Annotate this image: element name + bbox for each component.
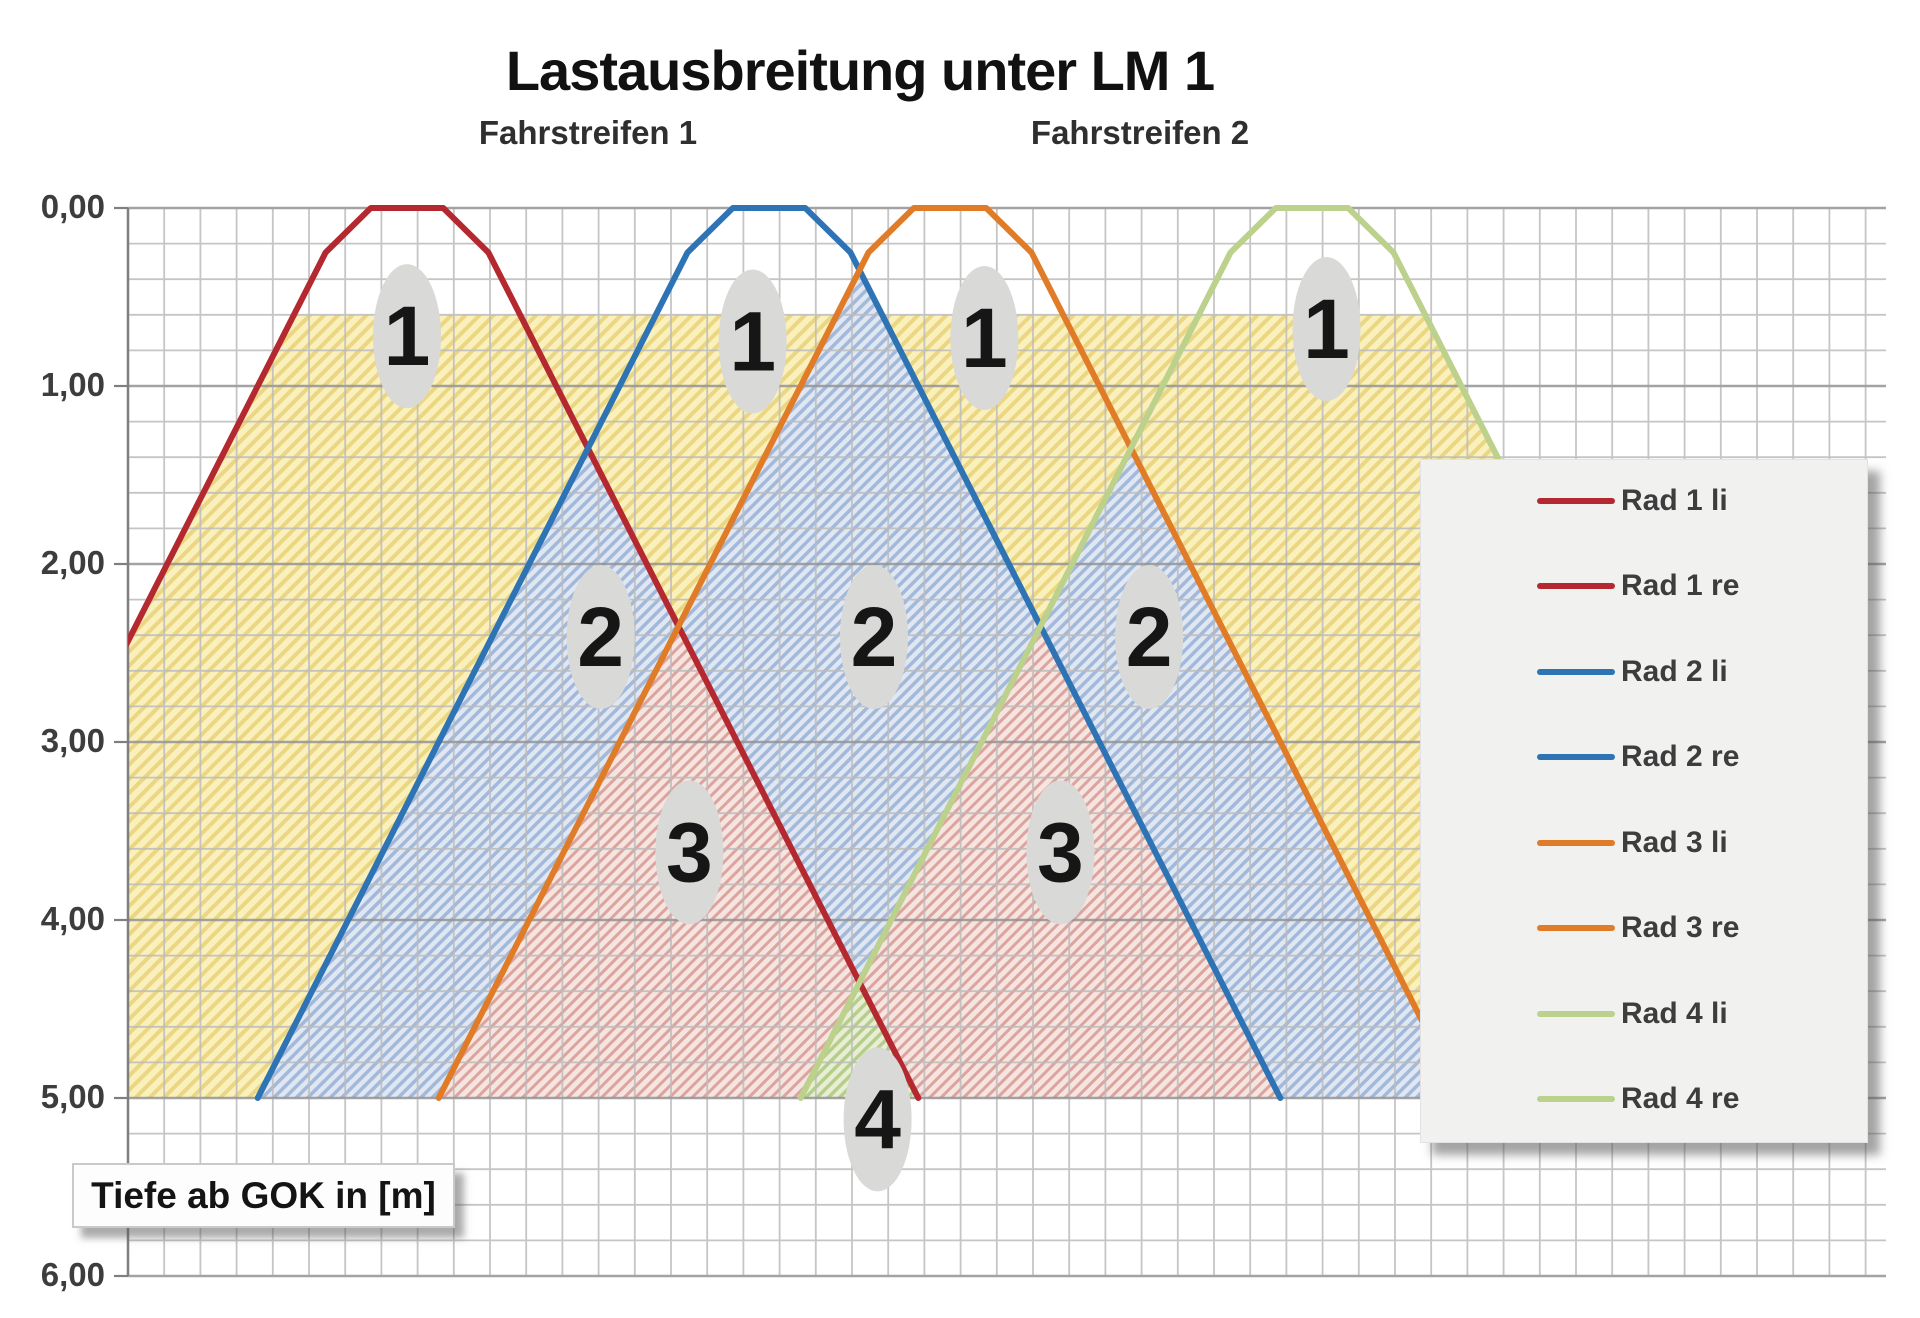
legend-item-rad-4-li: Rad 4 li bbox=[1537, 997, 1728, 1031]
zone-badge-number: 1 bbox=[1303, 282, 1350, 376]
legend: Rad 1 liRad 1 reRad 2 liRad 2 reRad 3 li… bbox=[1420, 459, 1868, 1143]
y-axis-label-6,00: 6,00 bbox=[25, 1256, 105, 1294]
y-axis-label-2,00: 2,00 bbox=[25, 544, 105, 582]
legend-label: Rad 3 li bbox=[1621, 826, 1728, 860]
depth-axis-title-box: Tiefe ab GOK in [m] bbox=[72, 1163, 455, 1228]
zone-badge-number: 2 bbox=[577, 590, 624, 684]
zone-badge-number: 4 bbox=[854, 1072, 901, 1166]
legend-item-rad-4-re: Rad 4 re bbox=[1537, 1082, 1739, 1116]
legend-item-rad-1-li: Rad 1 li bbox=[1537, 484, 1728, 518]
legend-line-swatch bbox=[1537, 669, 1615, 675]
zone-badge-2: 2 bbox=[1115, 565, 1183, 709]
legend-item-rad-3-li: Rad 3 li bbox=[1537, 826, 1728, 860]
zone-badge-number: 2 bbox=[851, 590, 898, 684]
legend-label: Rad 4 li bbox=[1621, 997, 1728, 1031]
legend-line-swatch bbox=[1537, 925, 1615, 931]
lane-label-fahrstreifen-2: Fahrstreifen 2 bbox=[1031, 114, 1249, 152]
y-axis-label-1,00: 1,00 bbox=[25, 366, 105, 404]
legend-line-swatch bbox=[1537, 1011, 1615, 1017]
legend-item-rad-3-re: Rad 3 re bbox=[1537, 911, 1739, 945]
legend-line-swatch bbox=[1537, 498, 1615, 504]
zone-badge-1: 1 bbox=[950, 266, 1018, 410]
y-axis-label-0,00: 0,00 bbox=[25, 188, 105, 226]
zone-badge-number: 1 bbox=[384, 289, 431, 383]
zone-badge-3: 3 bbox=[1026, 780, 1094, 924]
legend-line-swatch bbox=[1537, 1096, 1615, 1102]
y-axis-label-3,00: 3,00 bbox=[25, 722, 105, 760]
legend-label: Rad 1 re bbox=[1621, 569, 1739, 603]
zone-badge-2: 2 bbox=[840, 565, 908, 709]
legend-label: Rad 3 re bbox=[1621, 911, 1739, 945]
legend-line-swatch bbox=[1537, 583, 1615, 589]
zone-badge-1: 1 bbox=[719, 270, 787, 414]
lane-label-fahrstreifen-1: Fahrstreifen 1 bbox=[479, 114, 697, 152]
zone-badge-2: 2 bbox=[567, 565, 635, 709]
y-axis-label-4,00: 4,00 bbox=[25, 900, 105, 938]
legend-item-rad-2-re: Rad 2 re bbox=[1537, 740, 1739, 774]
chart-canvas: 1111222334 Lastausbreitung unter LM 1 Fa… bbox=[0, 0, 1920, 1318]
zone-badge-1: 1 bbox=[1292, 257, 1360, 401]
legend-item-rad-2-li: Rad 2 li bbox=[1537, 655, 1728, 689]
zone-badge-number: 2 bbox=[1126, 590, 1173, 684]
legend-label: Rad 2 li bbox=[1621, 655, 1728, 689]
legend-label: Rad 1 li bbox=[1621, 484, 1728, 518]
legend-line-swatch bbox=[1537, 840, 1615, 846]
legend-line-swatch bbox=[1537, 754, 1615, 760]
zone-badge-3: 3 bbox=[655, 780, 723, 924]
zone-badge-number: 1 bbox=[729, 295, 776, 389]
chart-title: Lastausbreitung unter LM 1 bbox=[506, 38, 1214, 103]
zone-badge-number: 3 bbox=[666, 805, 713, 899]
legend-item-rad-1-re: Rad 1 re bbox=[1537, 569, 1739, 603]
zone-badge-4: 4 bbox=[844, 1047, 912, 1191]
legend-label: Rad 4 re bbox=[1621, 1082, 1739, 1116]
zone-badge-number: 3 bbox=[1037, 805, 1084, 899]
depth-axis-title: Tiefe ab GOK in [m] bbox=[91, 1175, 436, 1217]
zone-badge-number: 1 bbox=[961, 291, 1008, 385]
legend-label: Rad 2 re bbox=[1621, 740, 1739, 774]
zone-badge-1: 1 bbox=[373, 264, 441, 408]
y-axis-label-5,00: 5,00 bbox=[25, 1078, 105, 1116]
